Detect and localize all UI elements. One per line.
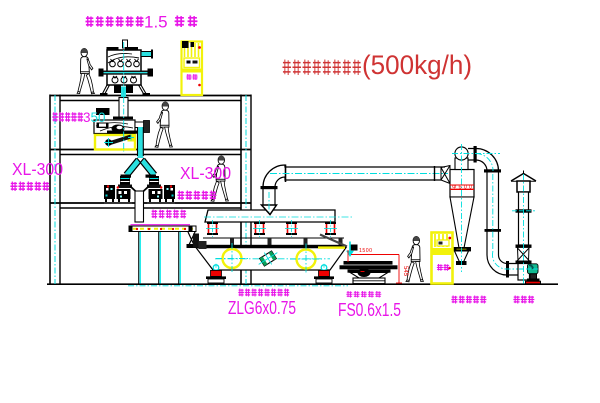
svg-text:FS0.6x1.5: FS0.6x1.5 <box>338 300 401 320</box>
svg-text:ZLG6x0.75: ZLG6x0.75 <box>228 298 296 318</box>
svg-text:XL-300: XL-300 <box>180 163 231 183</box>
svg-text:545: 545 <box>402 266 408 277</box>
svg-text:XL-300: XL-300 <box>12 159 63 179</box>
svg-text:1.5: 1.5 <box>144 13 168 32</box>
svg-text:1500: 1500 <box>359 248 372 254</box>
svg-text:50: 50 <box>91 110 106 125</box>
svg-text:(500kg/h): (500kg/h) <box>362 50 472 80</box>
svg-text:3: 3 <box>83 110 91 125</box>
